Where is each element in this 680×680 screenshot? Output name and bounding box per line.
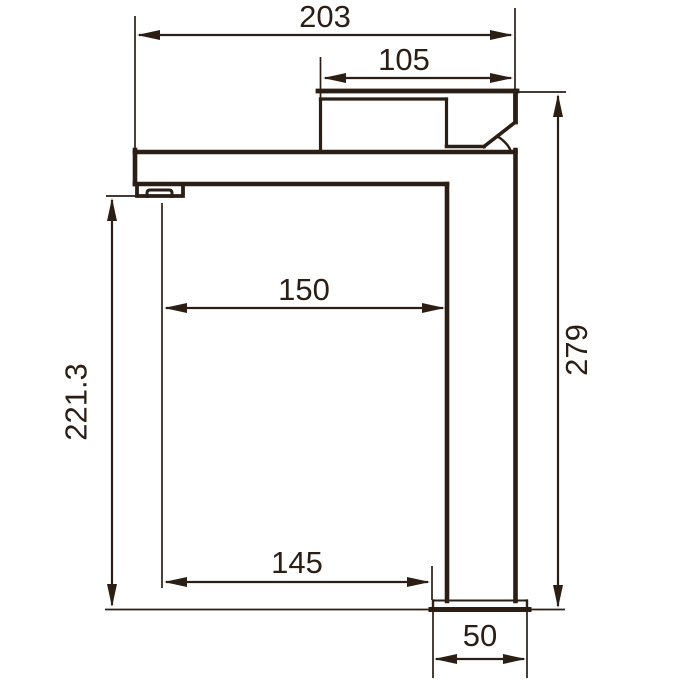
handle-fillet-arc [497, 136, 511, 152]
arrowhead-right [503, 654, 526, 664]
faucet-dimension-drawing: 203 105 279 221.3 150 [0, 0, 680, 680]
spout-reach-label: 150 [278, 272, 330, 307]
dimension-spout-top-length: 105 [323, 42, 513, 83]
spout-top-length-label: 105 [378, 42, 430, 77]
arrowhead-right [422, 303, 445, 313]
dimension-base-width: 50 [434, 618, 526, 664]
dimension-overall-length: 203 [137, 0, 513, 40]
aerator-to-base-label: 145 [271, 545, 323, 580]
arrowhead-left [137, 30, 160, 40]
faucet-outline [135, 91, 529, 610]
arrowhead-up [107, 198, 117, 221]
dimension-height-to-aerator: 221.3 [59, 198, 118, 607]
dimension-overall-height: 279 [553, 94, 594, 608]
arrowhead-left [164, 577, 187, 587]
dimension-spout-reach: 150 [164, 272, 445, 313]
arrowhead-up [553, 94, 563, 117]
arrowhead-left [164, 303, 187, 313]
arrowhead-down [553, 585, 563, 608]
height-to-aerator-label: 221.3 [59, 363, 94, 441]
arrowhead-right [407, 577, 430, 587]
handle-diagonal-edge [484, 122, 516, 147]
overall-length-label: 203 [299, 0, 351, 34]
handle-lever [318, 91, 517, 152]
drawing-canvas: 203 105 279 221.3 150 [0, 0, 680, 680]
arrowhead-right [490, 73, 513, 83]
dimension-aerator-to-base: 145 [164, 545, 430, 587]
arrowhead-left [434, 654, 457, 664]
extension-lines [105, 8, 566, 678]
overall-height-label: 279 [559, 324, 594, 376]
arrowhead-down [107, 584, 117, 607]
base-width-label: 50 [463, 618, 497, 653]
arrowhead-right [490, 30, 513, 40]
arrowhead-left [323, 73, 346, 83]
